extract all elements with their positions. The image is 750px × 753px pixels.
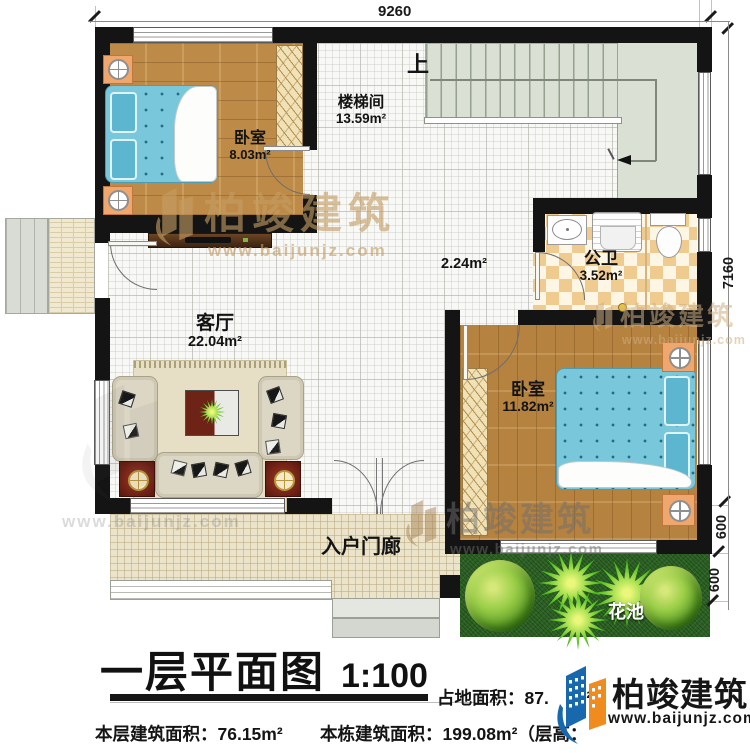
room-name: 楼梯间 [322, 94, 400, 111]
room-name: 公卫 [570, 249, 632, 268]
company-logo-url: www.baijunjz.com [608, 710, 750, 728]
entry-step-2 [332, 618, 440, 638]
floor-area-value: 76.15m² [218, 724, 283, 744]
cushion [265, 439, 281, 455]
duvet [174, 86, 217, 182]
room-name: 卧室 [496, 380, 560, 399]
window [500, 540, 657, 554]
stair-path-line [630, 160, 656, 162]
wall [440, 575, 460, 598]
side-landing-slab [5, 218, 48, 314]
room-label-bedroom1: 卧室 8.03m² [218, 130, 282, 162]
drawing-title: 一层平面图 [100, 638, 325, 700]
room-area: 13.59m² [322, 111, 400, 126]
dimension-label-width: 9260 [378, 3, 411, 20]
floor-area-label: 本层建筑面积： [95, 724, 218, 744]
building-area-label: 本栋建筑面积： [320, 724, 443, 744]
pillow [110, 139, 137, 180]
side-landing-steps [48, 218, 95, 314]
cushion [271, 413, 287, 429]
window [698, 340, 711, 465]
window [698, 218, 711, 252]
wall [445, 310, 460, 554]
wall [533, 214, 545, 252]
washer-drum [600, 226, 636, 250]
remote-icon [243, 238, 248, 242]
lamp-icon [274, 470, 295, 491]
door-leaf [535, 252, 540, 300]
lamp-icon [669, 347, 691, 369]
drawing-title-row: 一层平面图 1:100 [100, 638, 428, 700]
extension-line [699, 0, 700, 27]
floor-drain-icon [618, 303, 627, 312]
wall [95, 298, 110, 380]
floor-plan-page: 卧室 8.03m² 楼梯间 13.59m² 上 2.24m² 公卫 3.52m²… [0, 0, 750, 753]
hall-area-label: 2.24m² [436, 256, 492, 272]
door-leaf [108, 241, 157, 246]
cushion [123, 423, 140, 440]
room-area: 8.03m² [218, 148, 282, 163]
company-logo-icon [548, 660, 612, 746]
wall [285, 498, 332, 514]
tree-icon [465, 560, 535, 632]
room-label-living: 客厅 22.04m² [184, 313, 246, 351]
stairs-up-label: 上 [404, 53, 432, 78]
cushion [213, 462, 230, 479]
wall [697, 252, 712, 340]
wall [657, 540, 712, 554]
toilet-tank [650, 213, 686, 226]
room-label-bedroom2: 卧室 11.82m² [496, 380, 560, 415]
room-label-flowerbed: 花池 [604, 602, 648, 622]
lamp-icon [108, 59, 129, 80]
dimension-line-top [88, 21, 730, 22]
room-label-stairwell: 楼梯间 13.59m² [322, 94, 400, 126]
wall [303, 43, 317, 150]
stair-tread-edge [424, 117, 622, 124]
dimension-label-600b: 600 [707, 557, 723, 603]
lamp-icon [669, 500, 691, 522]
company-logo-name: 柏竣建筑 [612, 668, 748, 716]
pillow [664, 376, 690, 426]
room-area: 11.82m² [496, 399, 560, 415]
window [130, 498, 285, 514]
window [94, 380, 110, 465]
stair-landing [617, 43, 698, 214]
room-name: 客厅 [184, 313, 246, 334]
tv-icon [185, 237, 231, 243]
porch-front-sill [110, 580, 332, 600]
wall [95, 215, 317, 233]
dimension-label-600a: 600 [714, 504, 730, 550]
wall [273, 27, 712, 43]
wall [697, 27, 712, 72]
site-area-value: 87. [525, 688, 549, 708]
title-underline-bar [110, 694, 428, 701]
sofa-left [112, 376, 158, 462]
drawing-scale: 1:100 [341, 657, 428, 696]
wall [518, 310, 712, 325]
window [698, 72, 711, 175]
wall [95, 498, 130, 514]
cushion [191, 462, 207, 478]
stair-path-line [430, 79, 657, 81]
room-area: 22.04m² [184, 334, 246, 350]
wardrobe [462, 368, 488, 536]
lamp-icon [128, 470, 149, 491]
site-area-label: 占地面积： [437, 688, 525, 708]
entry-door-leaves [376, 458, 383, 514]
room-area: 3.52m² [570, 268, 632, 283]
room-name: 卧室 [218, 130, 282, 148]
palm-plant-icon [548, 590, 608, 650]
potted-plant-icon [199, 399, 225, 425]
window [133, 27, 273, 43]
drain-icon [566, 228, 569, 231]
building-area-value: 199.08m² [443, 724, 518, 744]
lamp-icon [108, 190, 129, 211]
door-leaf [463, 325, 468, 380]
dimension-label-height: 7160 [721, 250, 737, 296]
tree-icon [640, 566, 702, 630]
stair-direction-arrow-icon [617, 155, 631, 165]
room-label-porch: 入户门廊 [316, 536, 406, 558]
pillow [110, 92, 137, 133]
company-logo [548, 660, 612, 751]
stair-path-line [655, 79, 657, 161]
bath-divider [645, 214, 647, 310]
wall [445, 540, 500, 554]
floor-area-stat: 本层建筑面积：76.15m² [95, 721, 283, 746]
stair-treads [425, 43, 619, 123]
room-label-bathroom: 公卫 3.52m² [570, 249, 632, 283]
entry-step-1 [332, 598, 440, 618]
